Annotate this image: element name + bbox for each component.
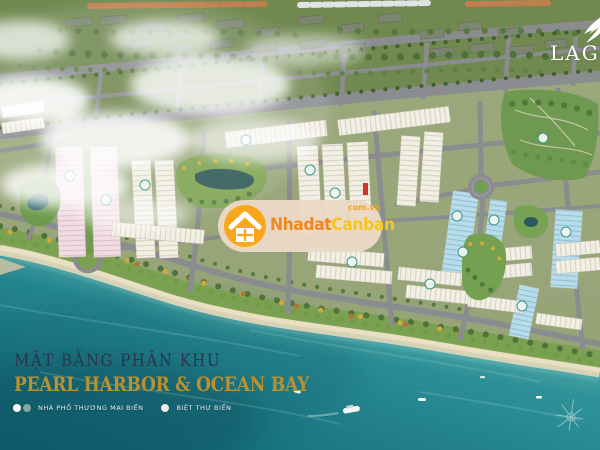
watermark-domain: com.vn: [348, 203, 381, 212]
legend-dot-pink: [161, 404, 169, 412]
title-block: MẶT BẰNG PHÂN KHU PEARL HARBOR & OCEAN B…: [14, 350, 309, 397]
plan-title: PEARL HARBOR & OCEAN BAY: [14, 374, 309, 397]
legend-label-villa: BIỆT THỰ BIỂN: [176, 404, 231, 412]
watermark-brand-part2: Canban: [331, 215, 394, 235]
watermark-brand: NhadatCanban: [270, 215, 395, 235]
legend: NHÀ PHỐ THƯƠNG MẠI BIỂN BIỆT THỰ BIỂN: [13, 404, 249, 412]
watermark-badge: com.vn NhadatCanban: [218, 200, 382, 252]
legend-item-shophouse: NHÀ PHỐ THƯƠNG MẠI BIỂN: [13, 404, 143, 412]
house-icon: [224, 205, 266, 247]
developer-logo-text: LAGUNA: [550, 41, 600, 65]
developer-logo: LAGUNA: [548, 10, 600, 65]
masterplan-image: LAGUNA com.vn NhadatCanban MẶT BẰNG PHÂN…: [0, 0, 600, 450]
legend-dot-white: [13, 404, 21, 412]
legend-label-shophouse: NHÀ PHỐ THƯƠNG MẠI BIỂN: [38, 404, 143, 412]
watermark-brand-part1: Nhadat: [270, 215, 331, 235]
plan-subtitle: MẶT BẰNG PHÂN KHU: [14, 350, 309, 371]
red-location-marker: [363, 183, 368, 195]
legend-item-villa: BIỆT THỰ BIỂN: [161, 404, 231, 412]
roundabout: [468, 174, 494, 200]
legend-dot-teal: [23, 404, 31, 412]
